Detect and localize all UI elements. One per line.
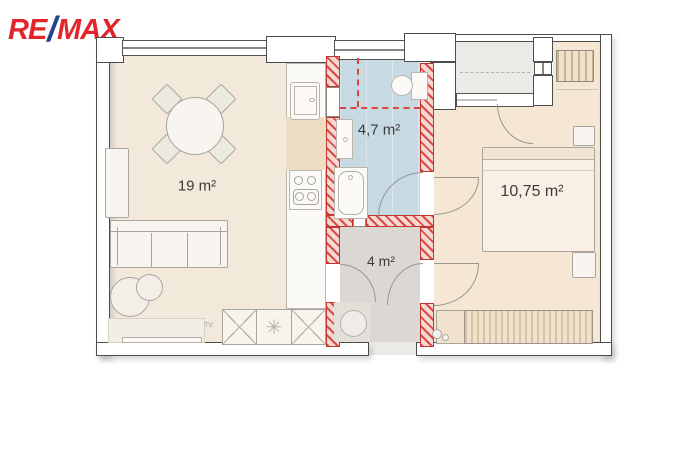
kitchen-sink — [290, 82, 320, 120]
dining-table — [166, 97, 224, 155]
door-opening-living-hall — [326, 264, 340, 302]
wardrobe-bedroom-hanging — [464, 310, 593, 344]
toilet-tank — [411, 72, 428, 100]
stove-burner — [307, 192, 316, 201]
recon-wall-bath-left-upper — [326, 56, 340, 87]
wardrobe-bedroom — [436, 310, 593, 344]
hallway-area-label: 4 m² — [367, 253, 395, 269]
floor-plant — [442, 334, 449, 341]
wardrobe-bedroom-end-cell — [436, 310, 465, 344]
bedroom-area-label: 10,75 m² — [500, 183, 563, 201]
toilet-bowl — [391, 75, 413, 96]
nightstand — [573, 126, 595, 146]
balcony-floor — [456, 40, 534, 96]
kitchen-worktop — [286, 117, 326, 170]
wardrobe-cell-cross — [291, 309, 326, 345]
nook-shelf-line — [556, 89, 598, 90]
tv-unit — [122, 337, 202, 343]
wall-topleft-pillar — [96, 37, 124, 63]
living-room-area-label: 19 m² — [178, 178, 216, 195]
stove-burner — [294, 176, 303, 185]
sofa-armrest — [111, 227, 118, 265]
bed-blanket-line — [483, 170, 594, 171]
bathroom-area-label: 4,7 m² — [358, 122, 401, 139]
wall-top-right-block — [404, 33, 456, 62]
bathtub — [334, 167, 368, 219]
wall-pillar-b1 — [533, 37, 553, 62]
stove-burner — [307, 176, 316, 185]
floor-plant — [432, 329, 442, 339]
wall-right — [600, 34, 612, 356]
kitchen-sink-drain — [309, 98, 315, 102]
bathroom-sink — [336, 119, 353, 159]
recon-wall-hall-right-lower — [420, 303, 434, 347]
balcony-window-dash — [460, 72, 530, 73]
recon-wall-hall-right-upper — [420, 227, 434, 260]
wardrobe-cell-cross — [222, 309, 257, 345]
sofa — [110, 220, 228, 268]
bedroom-door-leaf — [434, 177, 479, 178]
recon-dashed-line-vertical — [357, 58, 359, 107]
sofa-seat-divider — [187, 233, 188, 267]
sofa-backrest — [111, 221, 227, 232]
entry-threshold — [368, 342, 417, 355]
coffee-table-small — [136, 274, 163, 301]
wall-bottom-right — [416, 342, 612, 356]
wall-pillar-b2 — [533, 75, 553, 106]
sofa-seat-divider — [151, 233, 152, 267]
floorplan-image: RE / MAX — [0, 0, 684, 456]
nook-side-window — [534, 62, 552, 75]
wardrobe-star-icon: ✳ — [266, 318, 283, 338]
sink-drain — [343, 137, 348, 142]
stove-burner — [295, 192, 304, 201]
bedroom-bench — [572, 252, 596, 278]
wardrobe-living: ✳ — [222, 309, 326, 345]
living-window — [122, 40, 268, 56]
washing-machine — [340, 310, 367, 337]
floor-plan: TV ✳ — [0, 0, 684, 456]
sideboard — [105, 148, 129, 218]
bedroom-door-leaf — [434, 263, 479, 264]
recon-dashed-line-horizontal — [340, 107, 420, 109]
kitchen-stove — [289, 170, 322, 210]
sofa-armrest — [220, 227, 227, 265]
bathtub-drain — [348, 175, 353, 180]
radiator — [556, 50, 594, 82]
bed-headboard — [483, 148, 594, 160]
recon-wall-hall-left-upper — [326, 227, 340, 264]
bath-left-niche — [326, 87, 340, 117]
tv-label: TV — [204, 322, 213, 329]
